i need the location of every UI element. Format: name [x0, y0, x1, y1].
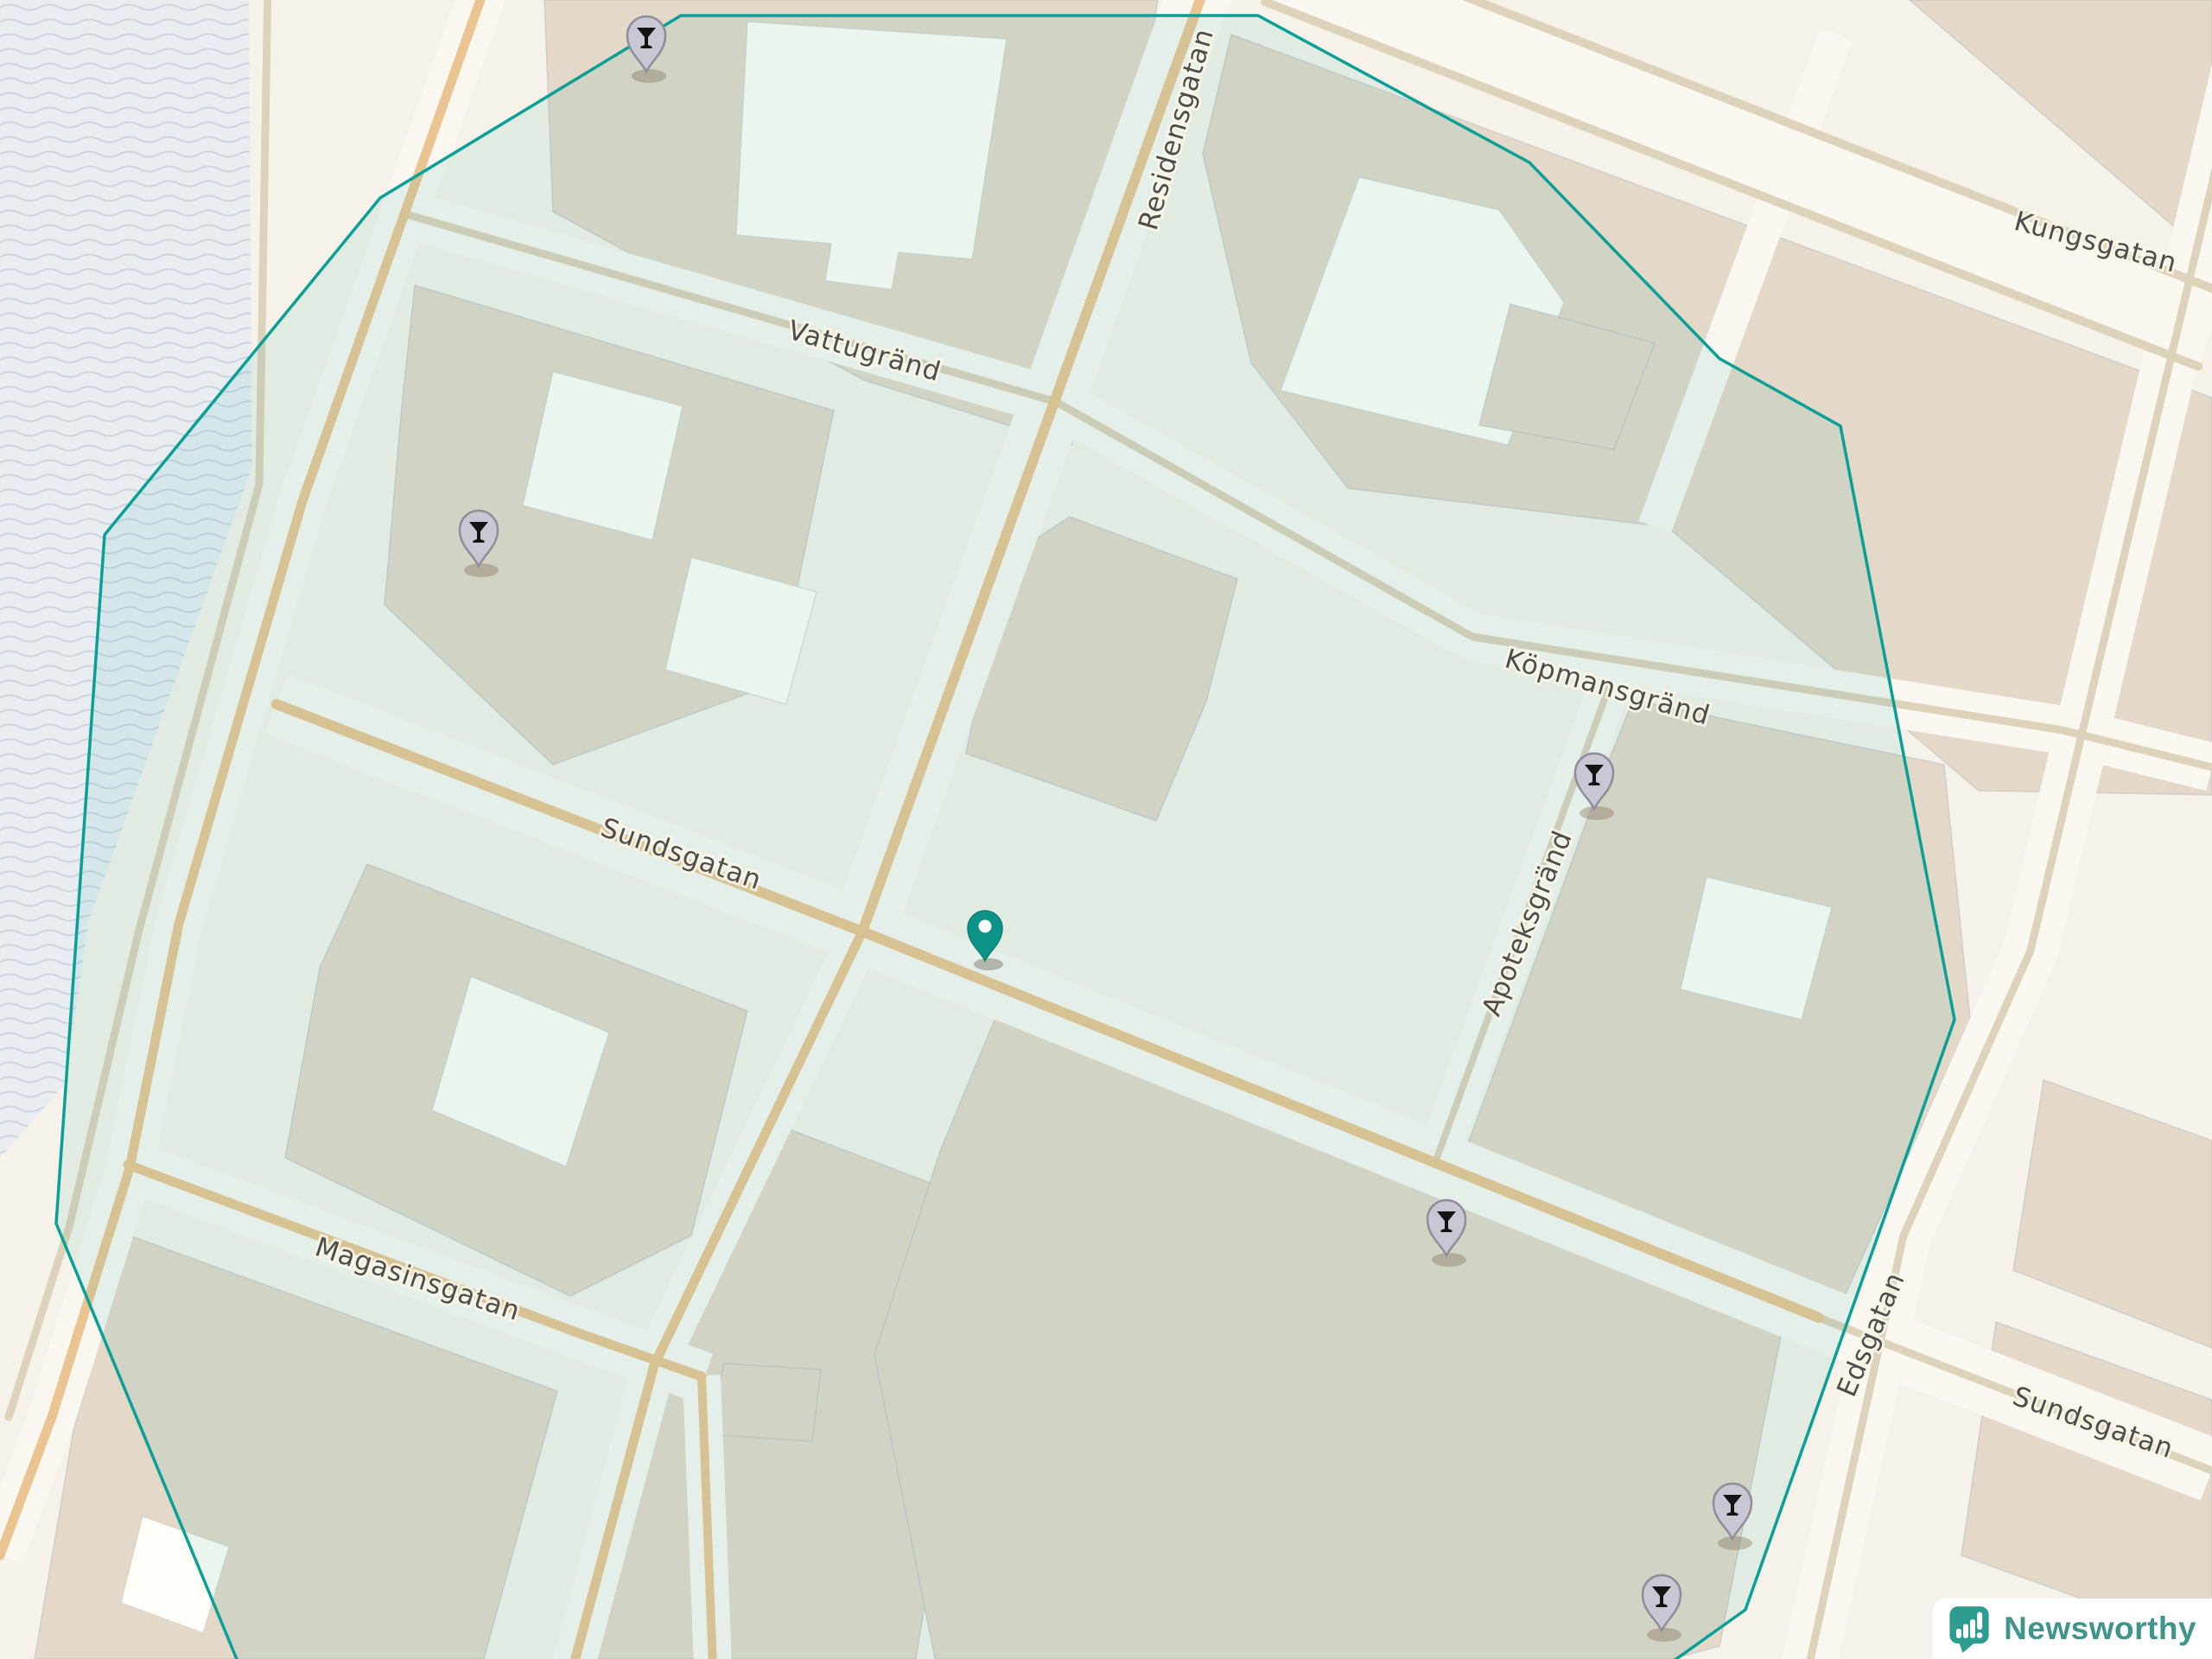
pin-shadow [464, 563, 499, 577]
poi-marker-pin[interactable] [1631, 1570, 1692, 1646]
basemap-svg: ResidensgatanKungsgatanVattugrändKöpmans… [0, 0, 2212, 1659]
map-viewport[interactable]: ResidensgatanKungsgatanVattugrändKöpmans… [0, 0, 2212, 1659]
location-pin[interactable] [959, 904, 1011, 976]
pin-shadow [974, 958, 1003, 970]
attribution-badge[interactable]: Newsworthy [1933, 1599, 2212, 1659]
poi-marker-pin[interactable] [448, 505, 509, 582]
poi-marker-pin[interactable] [1702, 1478, 1763, 1554]
pin-shadow [632, 69, 666, 83]
poi-marker-pin[interactable] [616, 11, 677, 87]
pin-shadow [1580, 806, 1614, 820]
poi-marker-pin[interactable] [1564, 748, 1624, 824]
attribution-brand-label: Newsworthy [2004, 1611, 2196, 1647]
pin-shadow [1718, 1536, 1752, 1550]
newsworthy-logo-icon [1947, 1605, 1992, 1653]
pin-dot [979, 920, 992, 933]
poi-marker-pin[interactable] [1416, 1195, 1477, 1271]
pin-body [968, 911, 1002, 961]
pin-shadow [1647, 1628, 1681, 1642]
pin-shadow [1432, 1253, 1466, 1267]
